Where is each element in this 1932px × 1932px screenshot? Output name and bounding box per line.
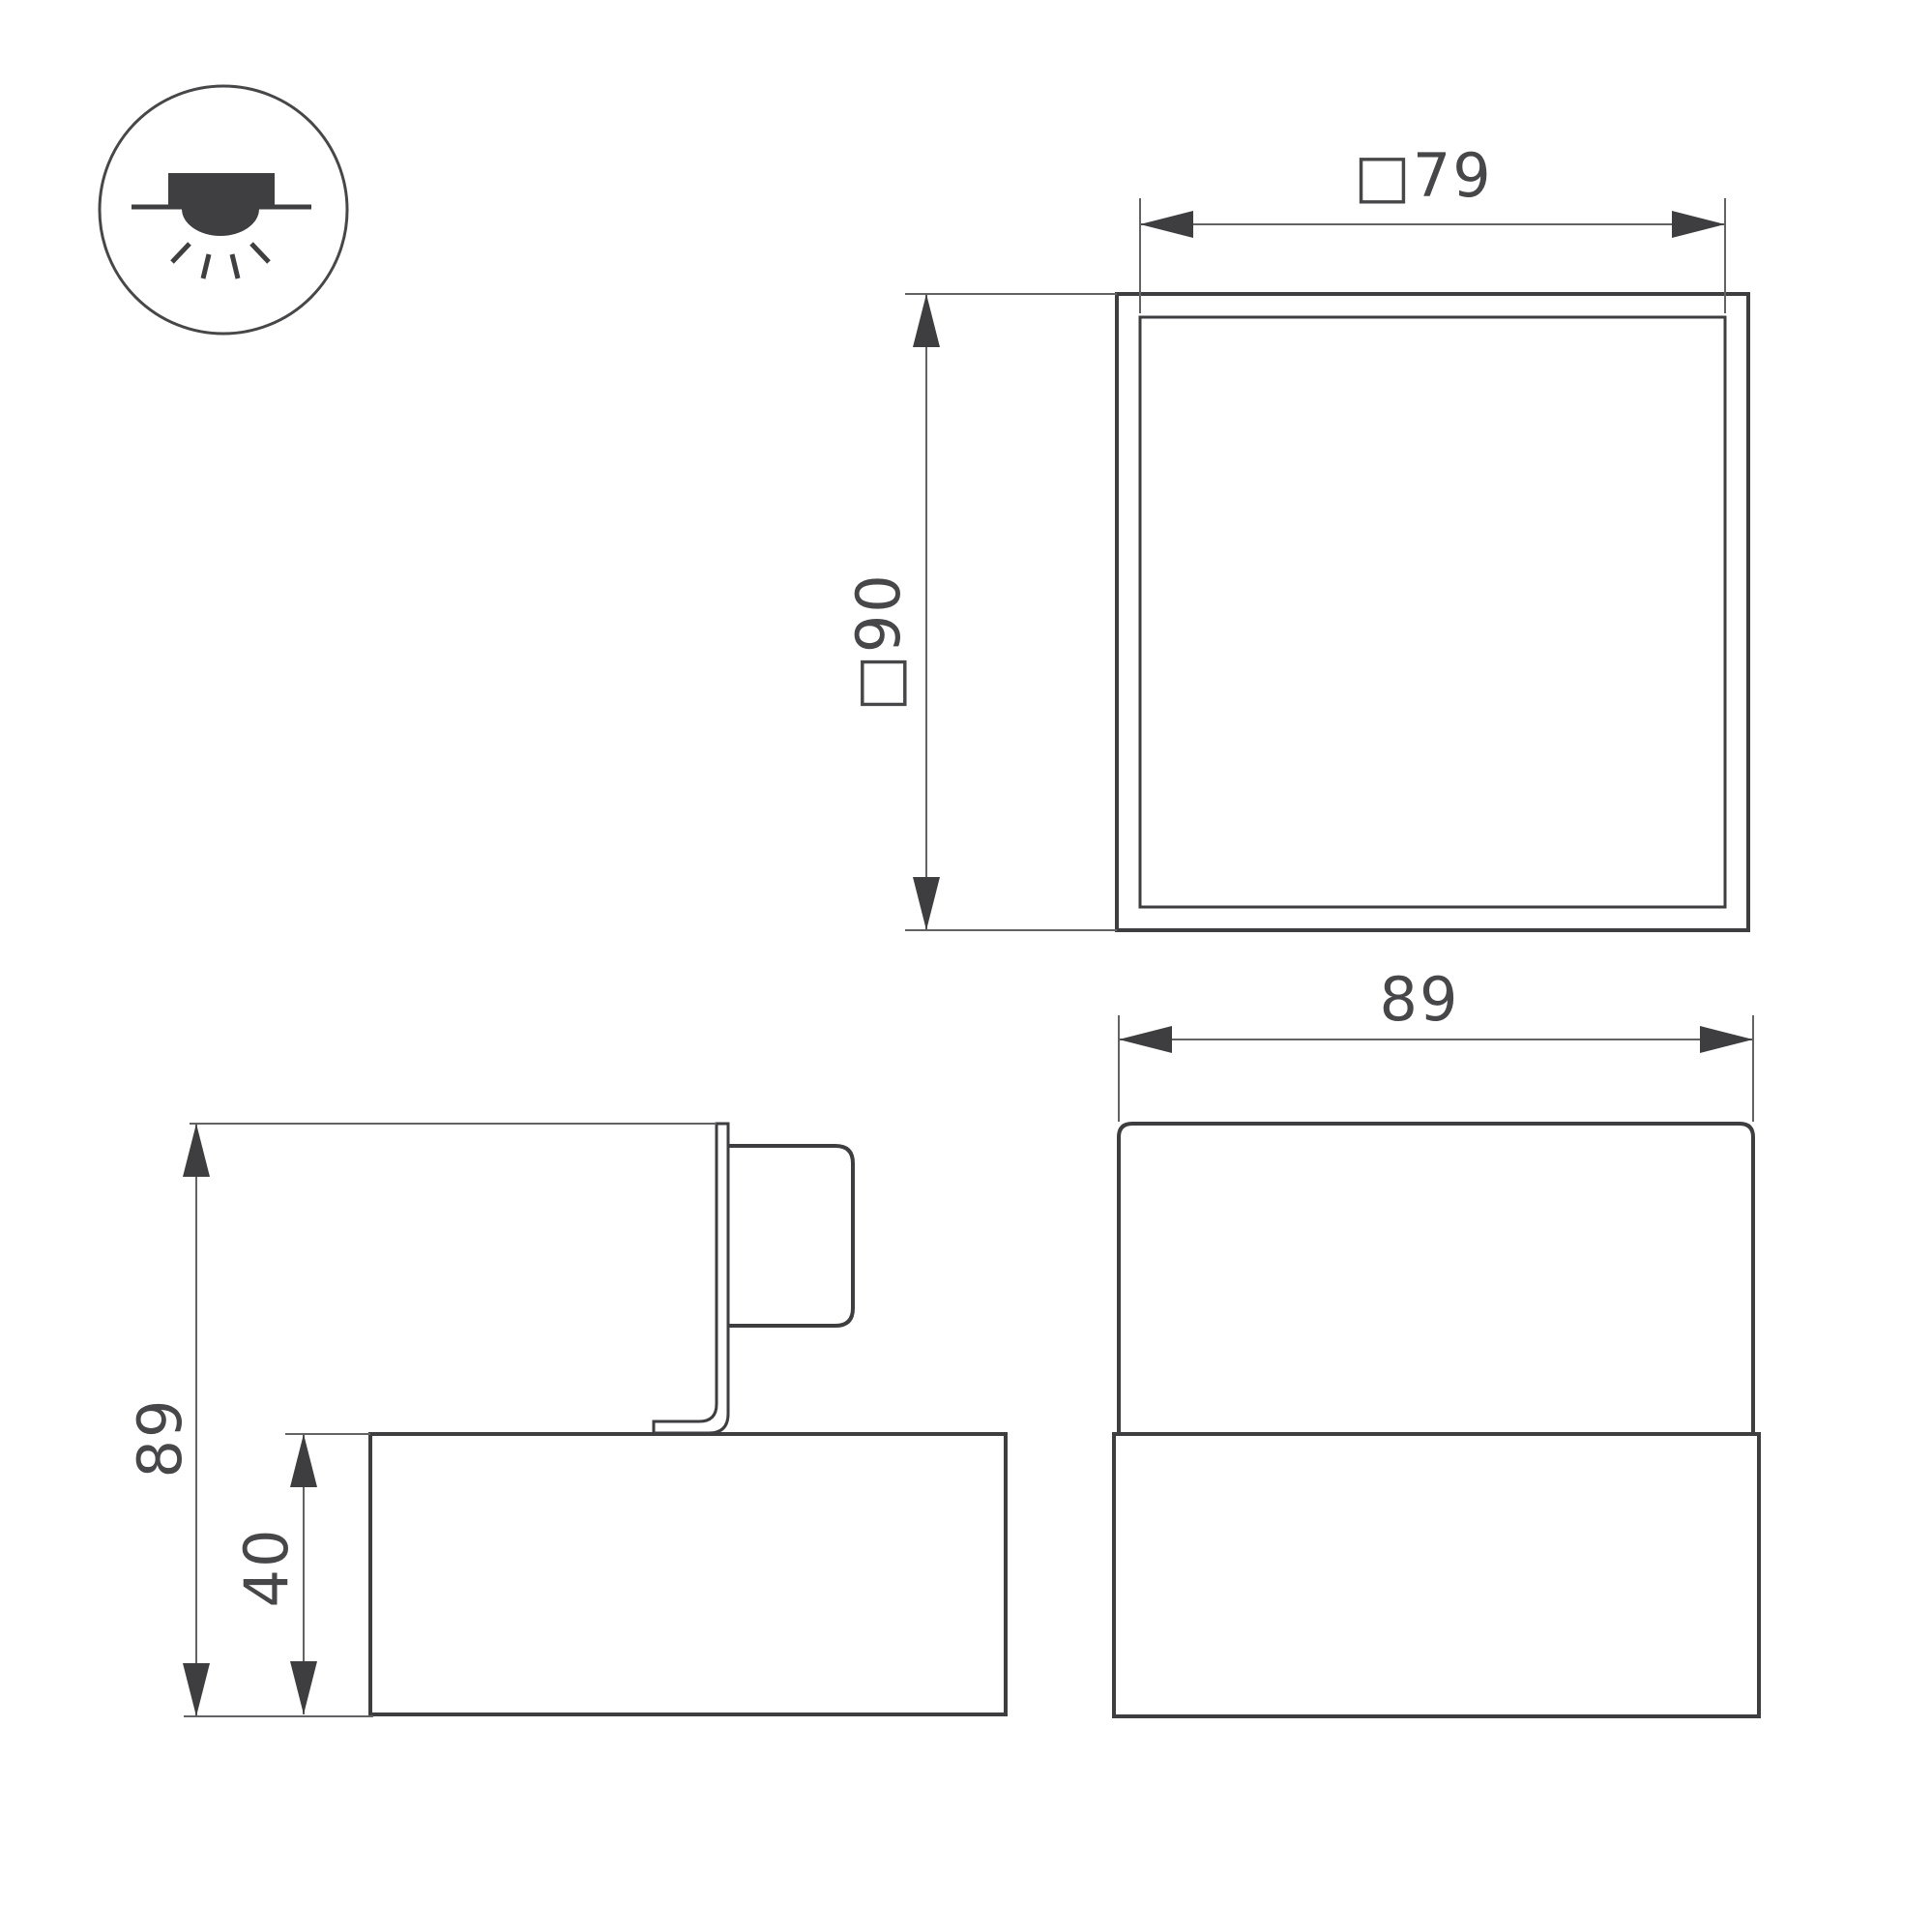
driver-box	[728, 1146, 853, 1326]
top-view-height-dimension: □90	[843, 294, 1117, 930]
front-view-width-dimension: 89	[1119, 964, 1753, 1122]
light-ray	[232, 254, 238, 278]
arrowhead-up	[183, 1124, 210, 1177]
side-view-height-label: 89	[125, 1398, 195, 1478]
light-ray	[172, 244, 190, 262]
drawing-svg: □79 □90 89	[0, 0, 1932, 1932]
arrowhead-down	[183, 1663, 210, 1716]
arrowhead-left	[1119, 1026, 1172, 1053]
mounting-type-icon	[100, 86, 347, 334]
side-view-height-dimension: 89	[125, 1124, 717, 1716]
arrowhead-down	[290, 1661, 317, 1714]
arrowhead-left	[1140, 211, 1193, 238]
arrowhead-up	[913, 294, 940, 347]
side-view-base-height-dimension: 40	[231, 1434, 370, 1714]
arrowhead-down	[913, 877, 940, 930]
arrowhead-right	[1700, 1026, 1753, 1053]
arrowhead-right	[1672, 211, 1725, 238]
top-view-outer-square	[1117, 294, 1748, 930]
arrowhead-up	[290, 1434, 317, 1487]
front-view	[1114, 1124, 1759, 1716]
mounting-bracket	[654, 1124, 728, 1433]
top-view-width-label: □79	[1354, 140, 1492, 211]
top-view	[1117, 294, 1748, 930]
top-view-height-label: □90	[843, 572, 914, 711]
housing-rect	[168, 173, 275, 206]
front-view-body	[1119, 1124, 1753, 1434]
side-view-base-box	[370, 1434, 1006, 1714]
front-view-width-label: 89	[1380, 964, 1460, 1035]
top-view-width-dimension: □79	[1140, 140, 1725, 313]
lamp-dome	[182, 209, 259, 236]
technical-drawing: □79 □90 89	[0, 0, 1932, 1932]
light-ray	[251, 244, 269, 262]
side-view-base-height-label: 40	[231, 1528, 302, 1608]
front-view-base-box	[1114, 1434, 1759, 1716]
side-view	[370, 1124, 1006, 1714]
light-ray	[203, 254, 209, 278]
top-view-inner-square	[1140, 317, 1725, 907]
